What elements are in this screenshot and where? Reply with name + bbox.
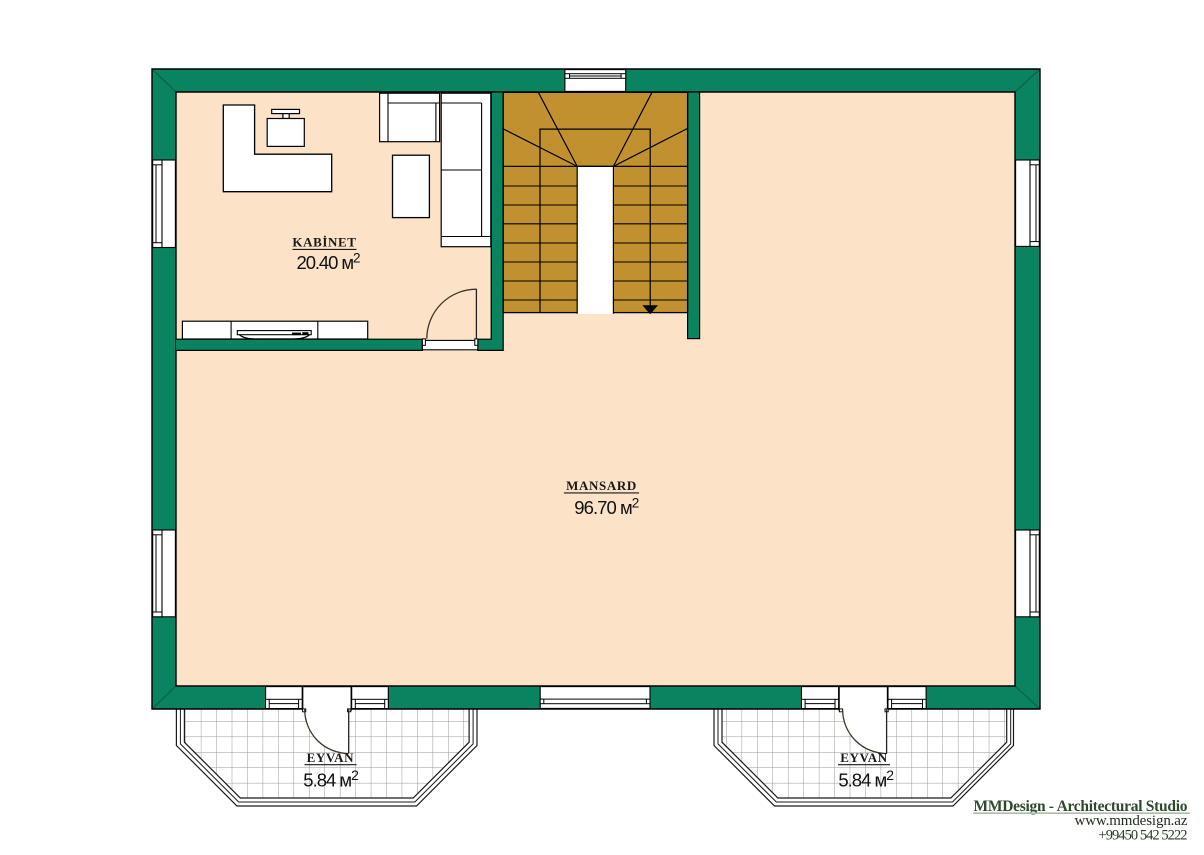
- svg-text:5.84 м2: 5.84 м2: [303, 767, 359, 791]
- svg-text:KABİNET: KABİNET: [292, 235, 356, 250]
- svg-text:20.40 м2: 20.40 м2: [297, 250, 361, 273]
- svg-text:96.70 м2: 96.70 м2: [574, 496, 639, 519]
- svg-text:www.mmdesign.az: www.mmdesign.az: [1075, 813, 1188, 829]
- svg-text:EYVAN: EYVAN: [840, 750, 888, 765]
- svg-text:+99450 542 5222: +99450 542 5222: [1099, 828, 1188, 844]
- svg-text:5.84 м2: 5.84 м2: [838, 767, 894, 791]
- svg-text:EYVAN: EYVAN: [307, 750, 355, 765]
- svg-text:MANSARD: MANSARD: [566, 478, 637, 493]
